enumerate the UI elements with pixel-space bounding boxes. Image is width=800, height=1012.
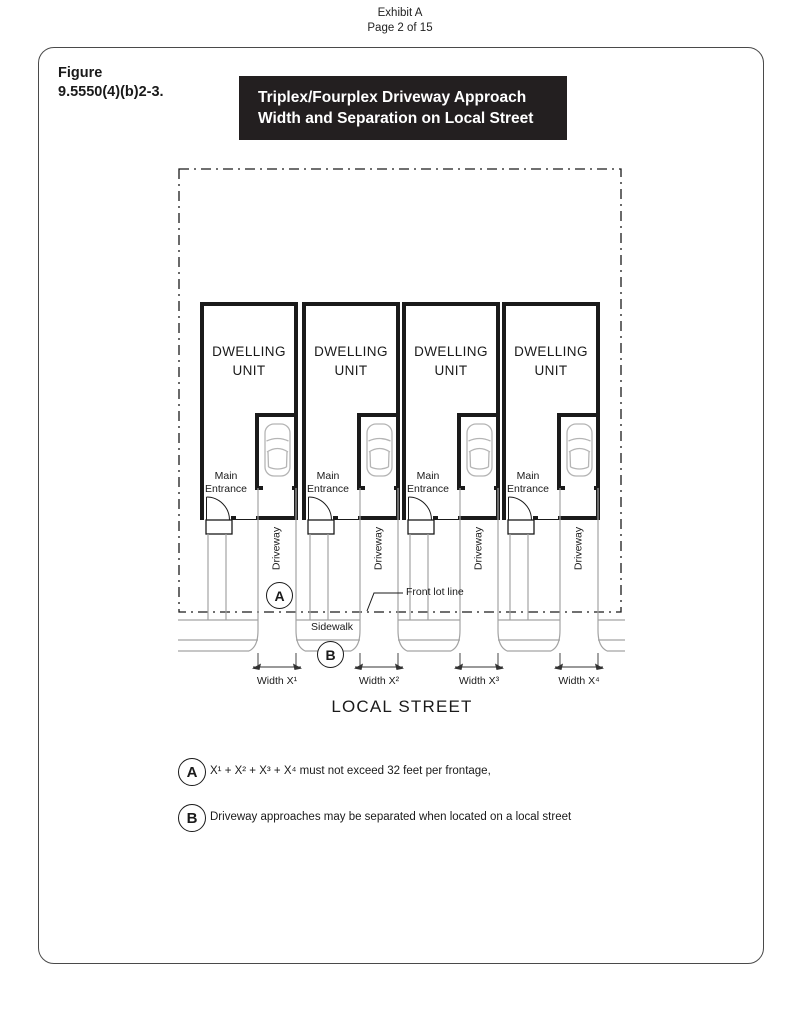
- note-a-text: X¹ + X² + X³ + X⁴ must not exceed 32 fee…: [210, 764, 491, 778]
- main-entrance-label: Main Entrance: [298, 470, 358, 496]
- main-entrance-label: Main Entrance: [398, 470, 458, 496]
- note-b-marker: B: [178, 804, 206, 832]
- front-lot-line-label: Front lot line: [406, 586, 464, 599]
- local-street-label: LOCAL STREET: [302, 697, 502, 717]
- site-plan-drawing: [0, 0, 800, 1012]
- dwelling-unit-label: DWELLING UNIT: [200, 342, 298, 380]
- sidewalk-label: Sidewalk: [311, 621, 353, 634]
- width-x3-label: Width X³: [449, 675, 509, 687]
- dwelling-unit-label: DWELLING UNIT: [402, 342, 500, 380]
- driveway-label: Driveway: [472, 509, 487, 589]
- main-entrance-label: Main Entrance: [498, 470, 558, 496]
- document-page: { "page": { "exhibit": "Exhibit A", "pag…: [0, 0, 800, 1012]
- main-entrance-label: Main Entrance: [196, 470, 256, 496]
- width-x1-label: Width X¹: [247, 675, 307, 687]
- width-x2-label: Width X²: [349, 675, 409, 687]
- dwelling-unit-label: DWELLING UNIT: [502, 342, 600, 380]
- marker-a-circle: A: [266, 582, 293, 609]
- marker-b-circle: B: [317, 641, 344, 668]
- dwelling-unit-label: DWELLING UNIT: [302, 342, 400, 380]
- driveway-label: Driveway: [270, 509, 285, 589]
- width-x4-label: Width X⁴: [549, 675, 609, 687]
- driveway-label: Driveway: [372, 509, 387, 589]
- note-b-text: Driveway approaches may be separated whe…: [210, 810, 571, 824]
- note-a-marker: A: [178, 758, 206, 786]
- driveway-label: Driveway: [572, 509, 587, 589]
